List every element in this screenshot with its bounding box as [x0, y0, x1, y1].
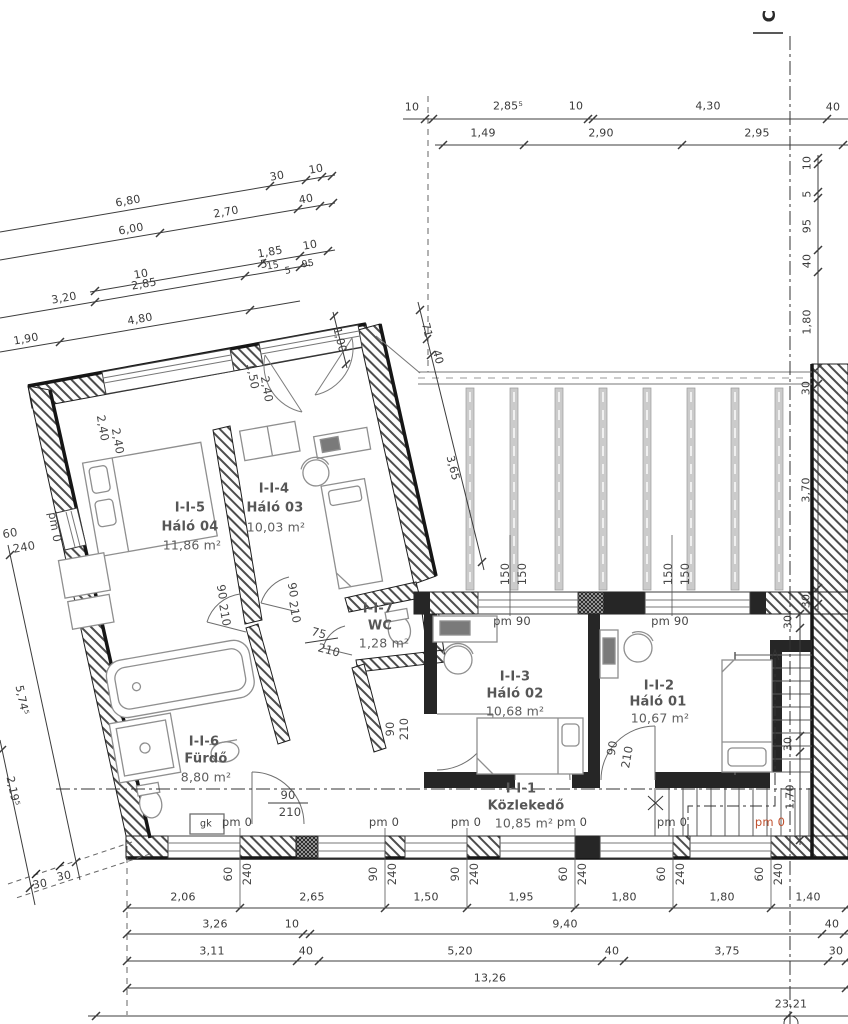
dim: 10	[302, 237, 318, 252]
room-name: Háló 03	[246, 501, 303, 516]
dim: 3,26	[202, 918, 227, 931]
dim: 30	[800, 381, 813, 395]
room-id: I-I-5	[175, 501, 206, 516]
dim: 30	[269, 168, 285, 183]
room-area: 1,28 m²	[359, 636, 409, 651]
door-size: 90	[285, 581, 301, 598]
room-area: 8,80 m²	[181, 770, 231, 785]
parapet-label: pm 0	[657, 815, 687, 829]
parapet-label: pm 90	[651, 614, 689, 628]
dim: 30	[32, 876, 48, 891]
dim: 95	[801, 219, 814, 233]
window-size: 60	[556, 866, 570, 881]
door-size: 90	[383, 721, 397, 736]
room-name: Háló 02	[486, 687, 543, 702]
window-size: 60	[1, 525, 18, 541]
door-size: 90	[604, 739, 620, 756]
room-id: I-I-3	[500, 670, 531, 685]
dim: 2,65	[299, 891, 324, 904]
crosshatch-block	[296, 836, 318, 858]
room-id: I-I-6	[189, 735, 220, 750]
dim: 2,90	[588, 127, 613, 140]
parapet-label-highlight: pm 0	[755, 815, 785, 829]
dim: 40	[801, 254, 814, 268]
parapet-label: pm 0	[557, 815, 587, 829]
dim: 2,85⁵	[493, 100, 523, 113]
room-name: Háló 04	[161, 520, 218, 535]
plan-drawing	[0, 0, 848, 1024]
window-size: 60	[654, 866, 668, 881]
dim: 3,11	[199, 945, 224, 958]
window-size: 240	[385, 863, 399, 886]
dim: 30	[782, 737, 795, 751]
dim: 23,21	[775, 998, 808, 1011]
window-size: 240	[467, 863, 481, 886]
door-size: 90	[280, 788, 295, 802]
gk-label: gk	[200, 819, 212, 830]
dim: 40	[826, 101, 840, 114]
room-area: 10,68 m²	[486, 704, 545, 719]
dim: 1,80	[801, 309, 814, 334]
dim: 10	[308, 161, 324, 176]
dim: 5	[801, 190, 814, 197]
dim: 30	[56, 868, 72, 883]
room-id: I-I-4	[259, 482, 290, 497]
window-size: 150	[661, 563, 675, 586]
dim: 1,80	[709, 891, 734, 904]
window-size: 90	[448, 866, 462, 881]
parapet-label: pm 0	[451, 815, 481, 829]
room-area: 10,03 m²	[247, 520, 306, 535]
dim: 5,20	[447, 945, 472, 958]
room-id: I-I-7	[363, 602, 394, 617]
parapet-label: pm 0	[222, 815, 252, 829]
dim: 1,50	[413, 891, 438, 904]
dim: 10	[285, 918, 299, 931]
dim: 9,40	[552, 918, 577, 931]
room-area: 10,85 m²	[495, 816, 554, 831]
dim: 40	[298, 191, 314, 206]
crosshatch-block	[578, 592, 604, 614]
dim: 10	[569, 100, 583, 113]
dim: 40	[825, 918, 839, 931]
room-name: Háló 01	[629, 695, 686, 710]
door-size: 210	[397, 718, 411, 741]
window-size: 60	[752, 866, 766, 881]
parapet-label: pm 90	[493, 614, 531, 628]
dim: 1,95	[508, 891, 533, 904]
room-name: Közlekedő	[488, 799, 565, 814]
room-id: I-I-2	[644, 679, 675, 694]
door-size: 90	[214, 583, 230, 600]
parapet-label: pm 0	[369, 815, 399, 829]
window-size: 150	[515, 563, 529, 586]
room-name: Fürdő	[184, 752, 227, 767]
dim: 10	[801, 156, 814, 170]
dim: 30	[782, 615, 795, 629]
window-size: 90	[366, 866, 380, 881]
dim: 1,40	[795, 891, 820, 904]
dim: 1,49	[470, 127, 495, 140]
dim: 30	[800, 594, 813, 608]
dim: 2,06	[170, 891, 195, 904]
window-size: 60	[221, 866, 235, 881]
room-id: I-I-1	[506, 782, 537, 797]
window-size: 150	[498, 563, 512, 586]
room-area: 11,86 m²	[163, 538, 222, 553]
dim: 4,30	[695, 100, 720, 113]
terrace	[376, 336, 812, 616]
dim: 1,80	[611, 891, 636, 904]
dim: 10	[405, 101, 419, 114]
door-size: 210	[279, 805, 302, 819]
window-size: 240	[673, 863, 687, 886]
window-size: 240	[575, 863, 589, 886]
room-name: WC	[368, 619, 392, 634]
window-size: 240	[771, 863, 785, 886]
dim: 95	[301, 257, 315, 270]
dim: 40	[299, 945, 313, 958]
dim: 3,70	[800, 477, 813, 502]
window-size: 150	[678, 563, 692, 586]
room-area: 10,67 m²	[631, 711, 690, 726]
dim: 1,70	[784, 784, 797, 809]
dim: 40	[605, 945, 619, 958]
section-marker-c: C	[760, 10, 780, 23]
floor-plan: C I-I-5 Háló 04 11,86 m² I-I-4 Háló 03 1…	[0, 0, 848, 1024]
dim: 30	[829, 945, 843, 958]
dim: 3,75	[714, 945, 739, 958]
dim: 2,95	[744, 127, 769, 140]
window-size: 240	[240, 863, 254, 886]
terrace-planks	[466, 388, 783, 590]
dim: 13,26	[474, 972, 507, 985]
